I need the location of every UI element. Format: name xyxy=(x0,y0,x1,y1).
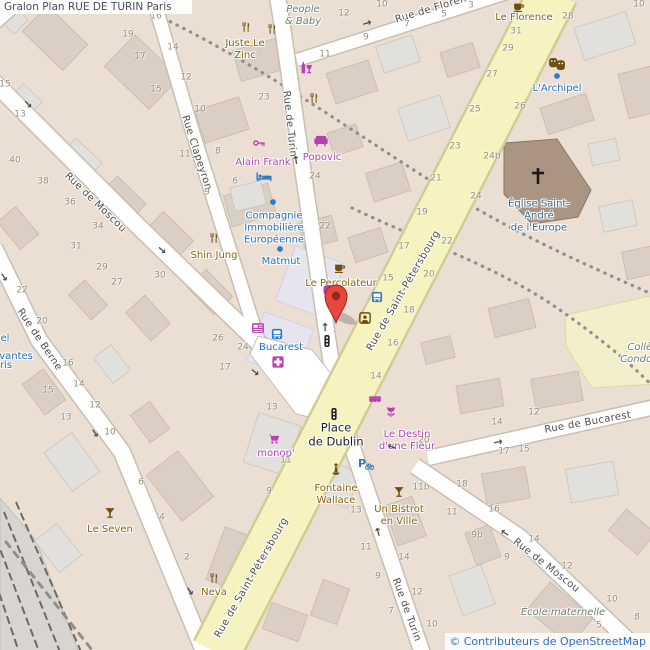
map-page: { "title": "Gralon Plan RUE DE TURIN Par… xyxy=(0,0,650,650)
map-canvas[interactable]: P xyxy=(0,0,650,650)
